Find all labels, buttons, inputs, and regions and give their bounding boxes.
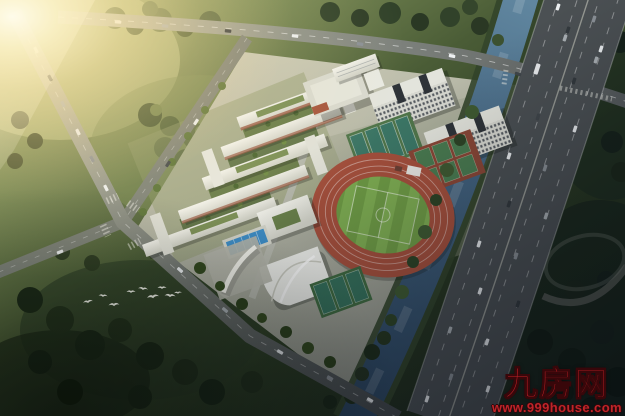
lighting-overlays (0, 0, 625, 416)
scene-canvas (0, 0, 625, 416)
watermark: 九房网 www.999house.com (492, 367, 622, 414)
watermark-logo: 九房网 (492, 367, 622, 400)
watermark-url: www.999house.com (492, 401, 622, 414)
aerial-campus-rendering: 九房网 www.999house.com (0, 0, 625, 416)
